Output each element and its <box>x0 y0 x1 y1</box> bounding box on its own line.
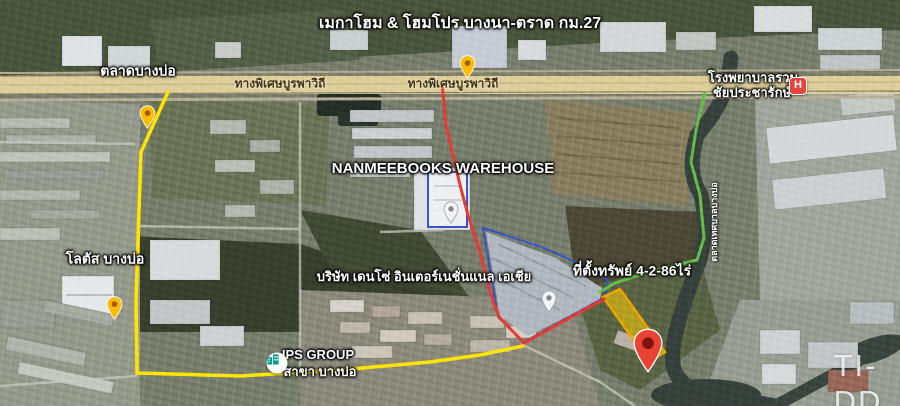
label-bangbo-market: ตลาดบางบ่อ <box>100 63 176 78</box>
label-ips-branch: สาขา บางบ่อ <box>284 365 357 379</box>
hospital-h-icon: H <box>794 79 802 91</box>
satellite-map-canvas[interactable]: เมกาโฮม & โฮมโปร บางนา-ตราด กม.27 ตลาดบา… <box>0 0 900 406</box>
grey-pin-icon <box>443 201 459 224</box>
label-denso: บริษัท เดนโซ่ อินเตอร์เนชั่นแนล เอเชีย <box>317 270 532 284</box>
red-pin-icon <box>632 328 664 373</box>
label-hospital-line2: ชัยประชารักษ์ <box>713 86 791 100</box>
ips-marker[interactable] <box>267 353 288 374</box>
label-megahome: เมกาโฮม & โฮมโปร บางนา-ตราด กม.27 <box>319 15 601 33</box>
label-ips-group: IPS GROUP <box>282 348 354 362</box>
label-hospital-line1: โรงพยาบาลรวม <box>708 71 798 85</box>
grey-pin-icon <box>541 290 557 313</box>
hospital-marker[interactable]: H <box>789 77 807 95</box>
yellow-pin-icon <box>459 55 476 79</box>
label-expressway-left: ทางพิเศษบูรพาวิถี <box>235 75 326 94</box>
label-lotus-bangbo: โลตัส บางบ่อ <box>66 251 145 266</box>
watermark: TI-DD <box>834 348 883 406</box>
ips-building-icon <box>267 353 280 366</box>
label-expressway-center: ทางพิเศษบูรพาวิถี <box>408 75 499 94</box>
yellow-pin-icon <box>106 296 123 320</box>
label-property-site: ที่ตั้งทรัพย์ 4-2-86ไร่ <box>573 263 691 278</box>
label-canal-road: ตลาดเทศบาลบางบ่อ <box>707 182 721 262</box>
yellow-pin-icon <box>139 105 156 129</box>
label-nanmee-warehouse: NANMEEBOOKS WAREHOUSE <box>332 161 555 178</box>
